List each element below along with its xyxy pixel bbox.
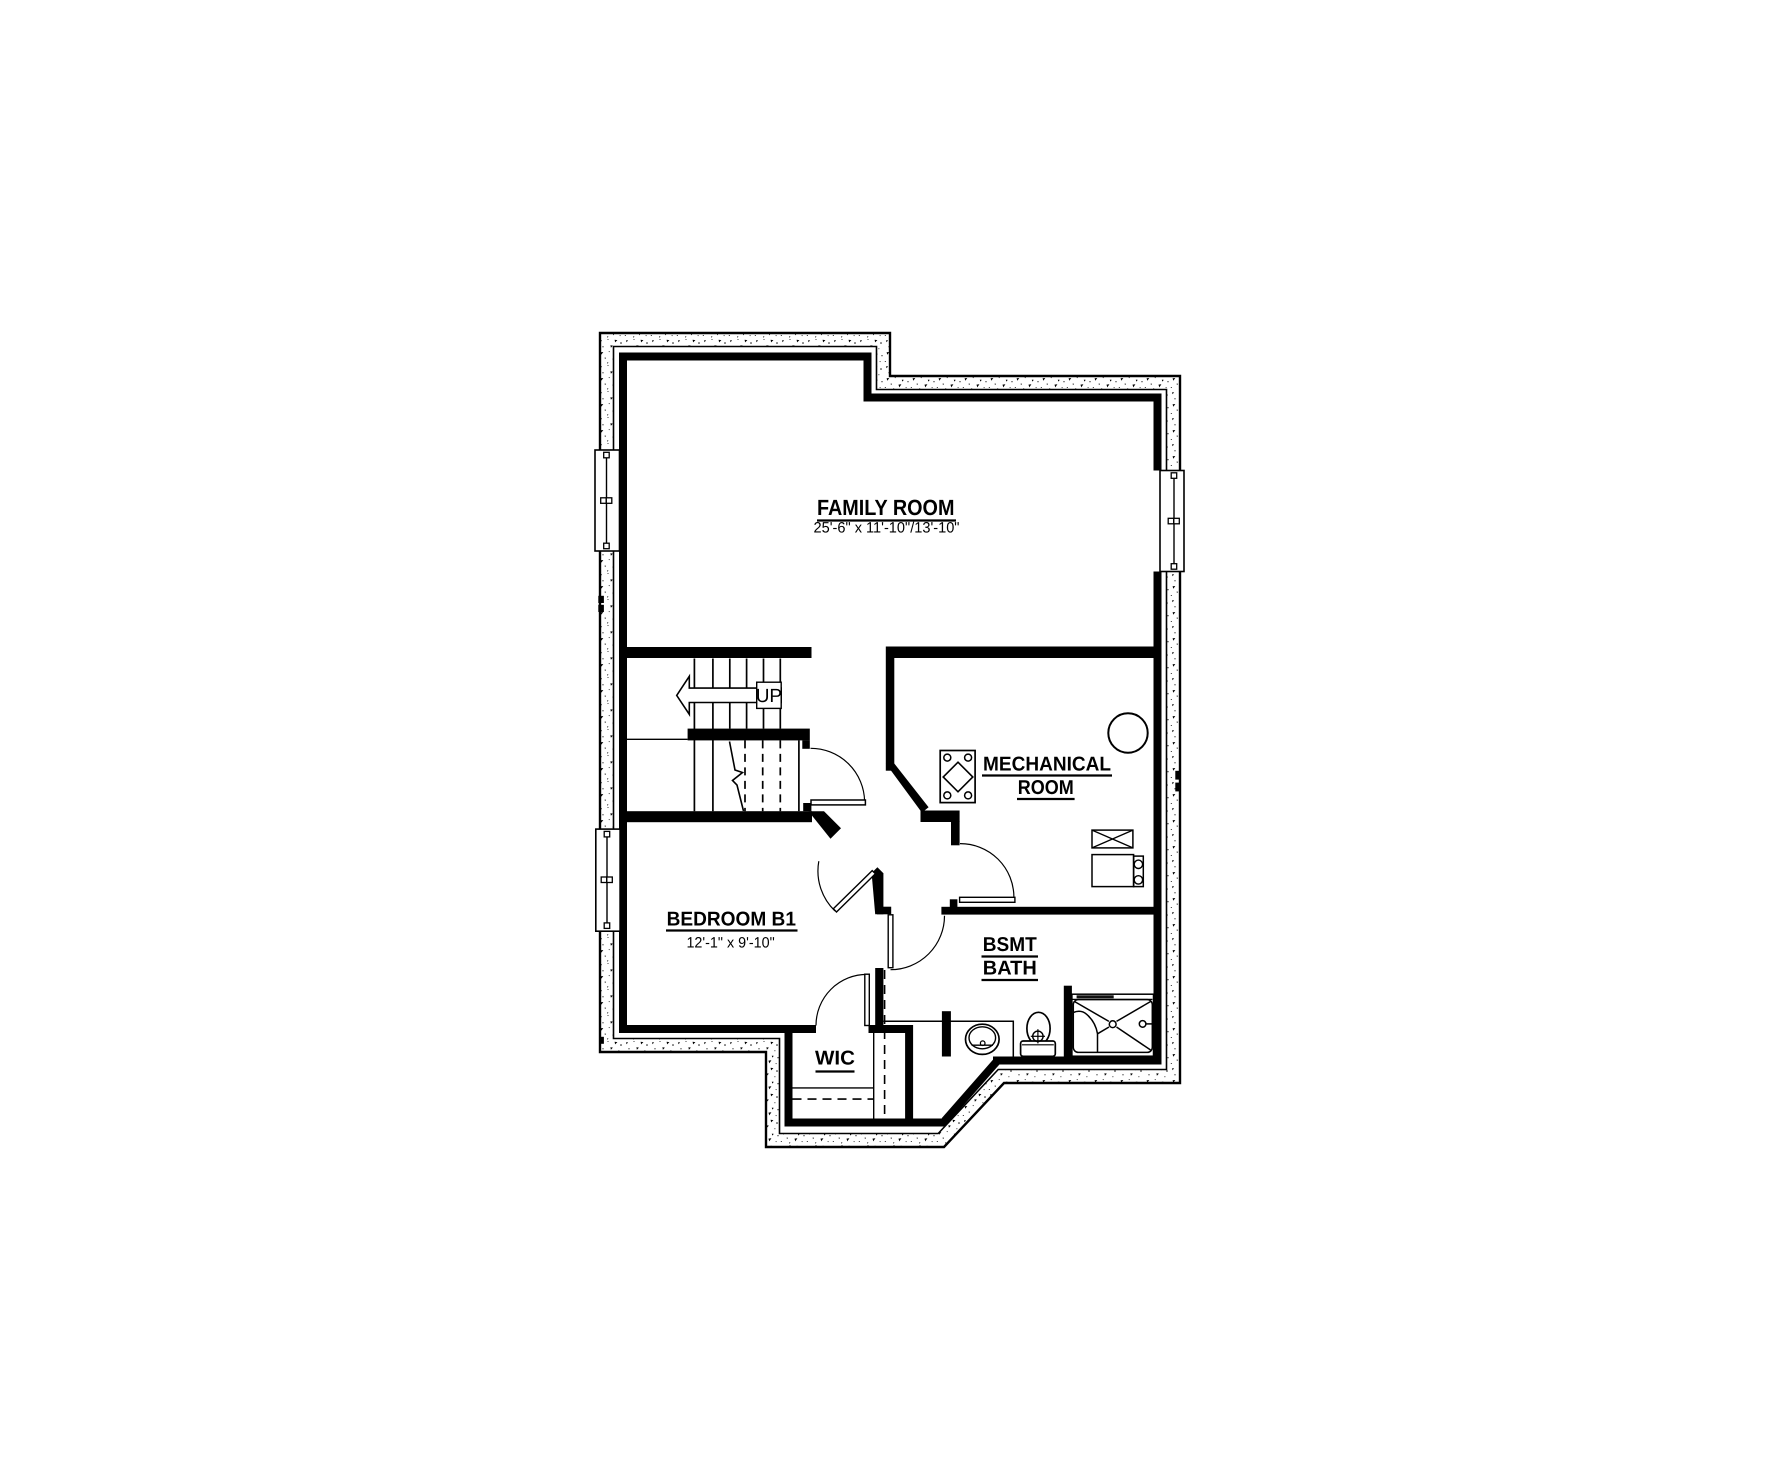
svg-text:MECHANICAL: MECHANICAL: [983, 754, 1111, 776]
svg-text:BATH: BATH: [983, 958, 1037, 980]
svg-text:BSMT: BSMT: [983, 934, 1037, 956]
svg-text:UP: UP: [756, 686, 782, 707]
svg-text:12'-1" x 9'-10": 12'-1" x 9'-10": [686, 935, 774, 952]
svg-text:25'-6" x 11'-10"/13'-10": 25'-6" x 11'-10"/13'-10": [814, 520, 960, 537]
svg-text:WIC: WIC: [815, 1048, 855, 1070]
svg-text:ROOM: ROOM: [1018, 777, 1074, 799]
svg-text:FAMILY ROOM: FAMILY ROOM: [817, 495, 955, 520]
svg-text:BEDROOM B1: BEDROOM B1: [667, 909, 796, 931]
